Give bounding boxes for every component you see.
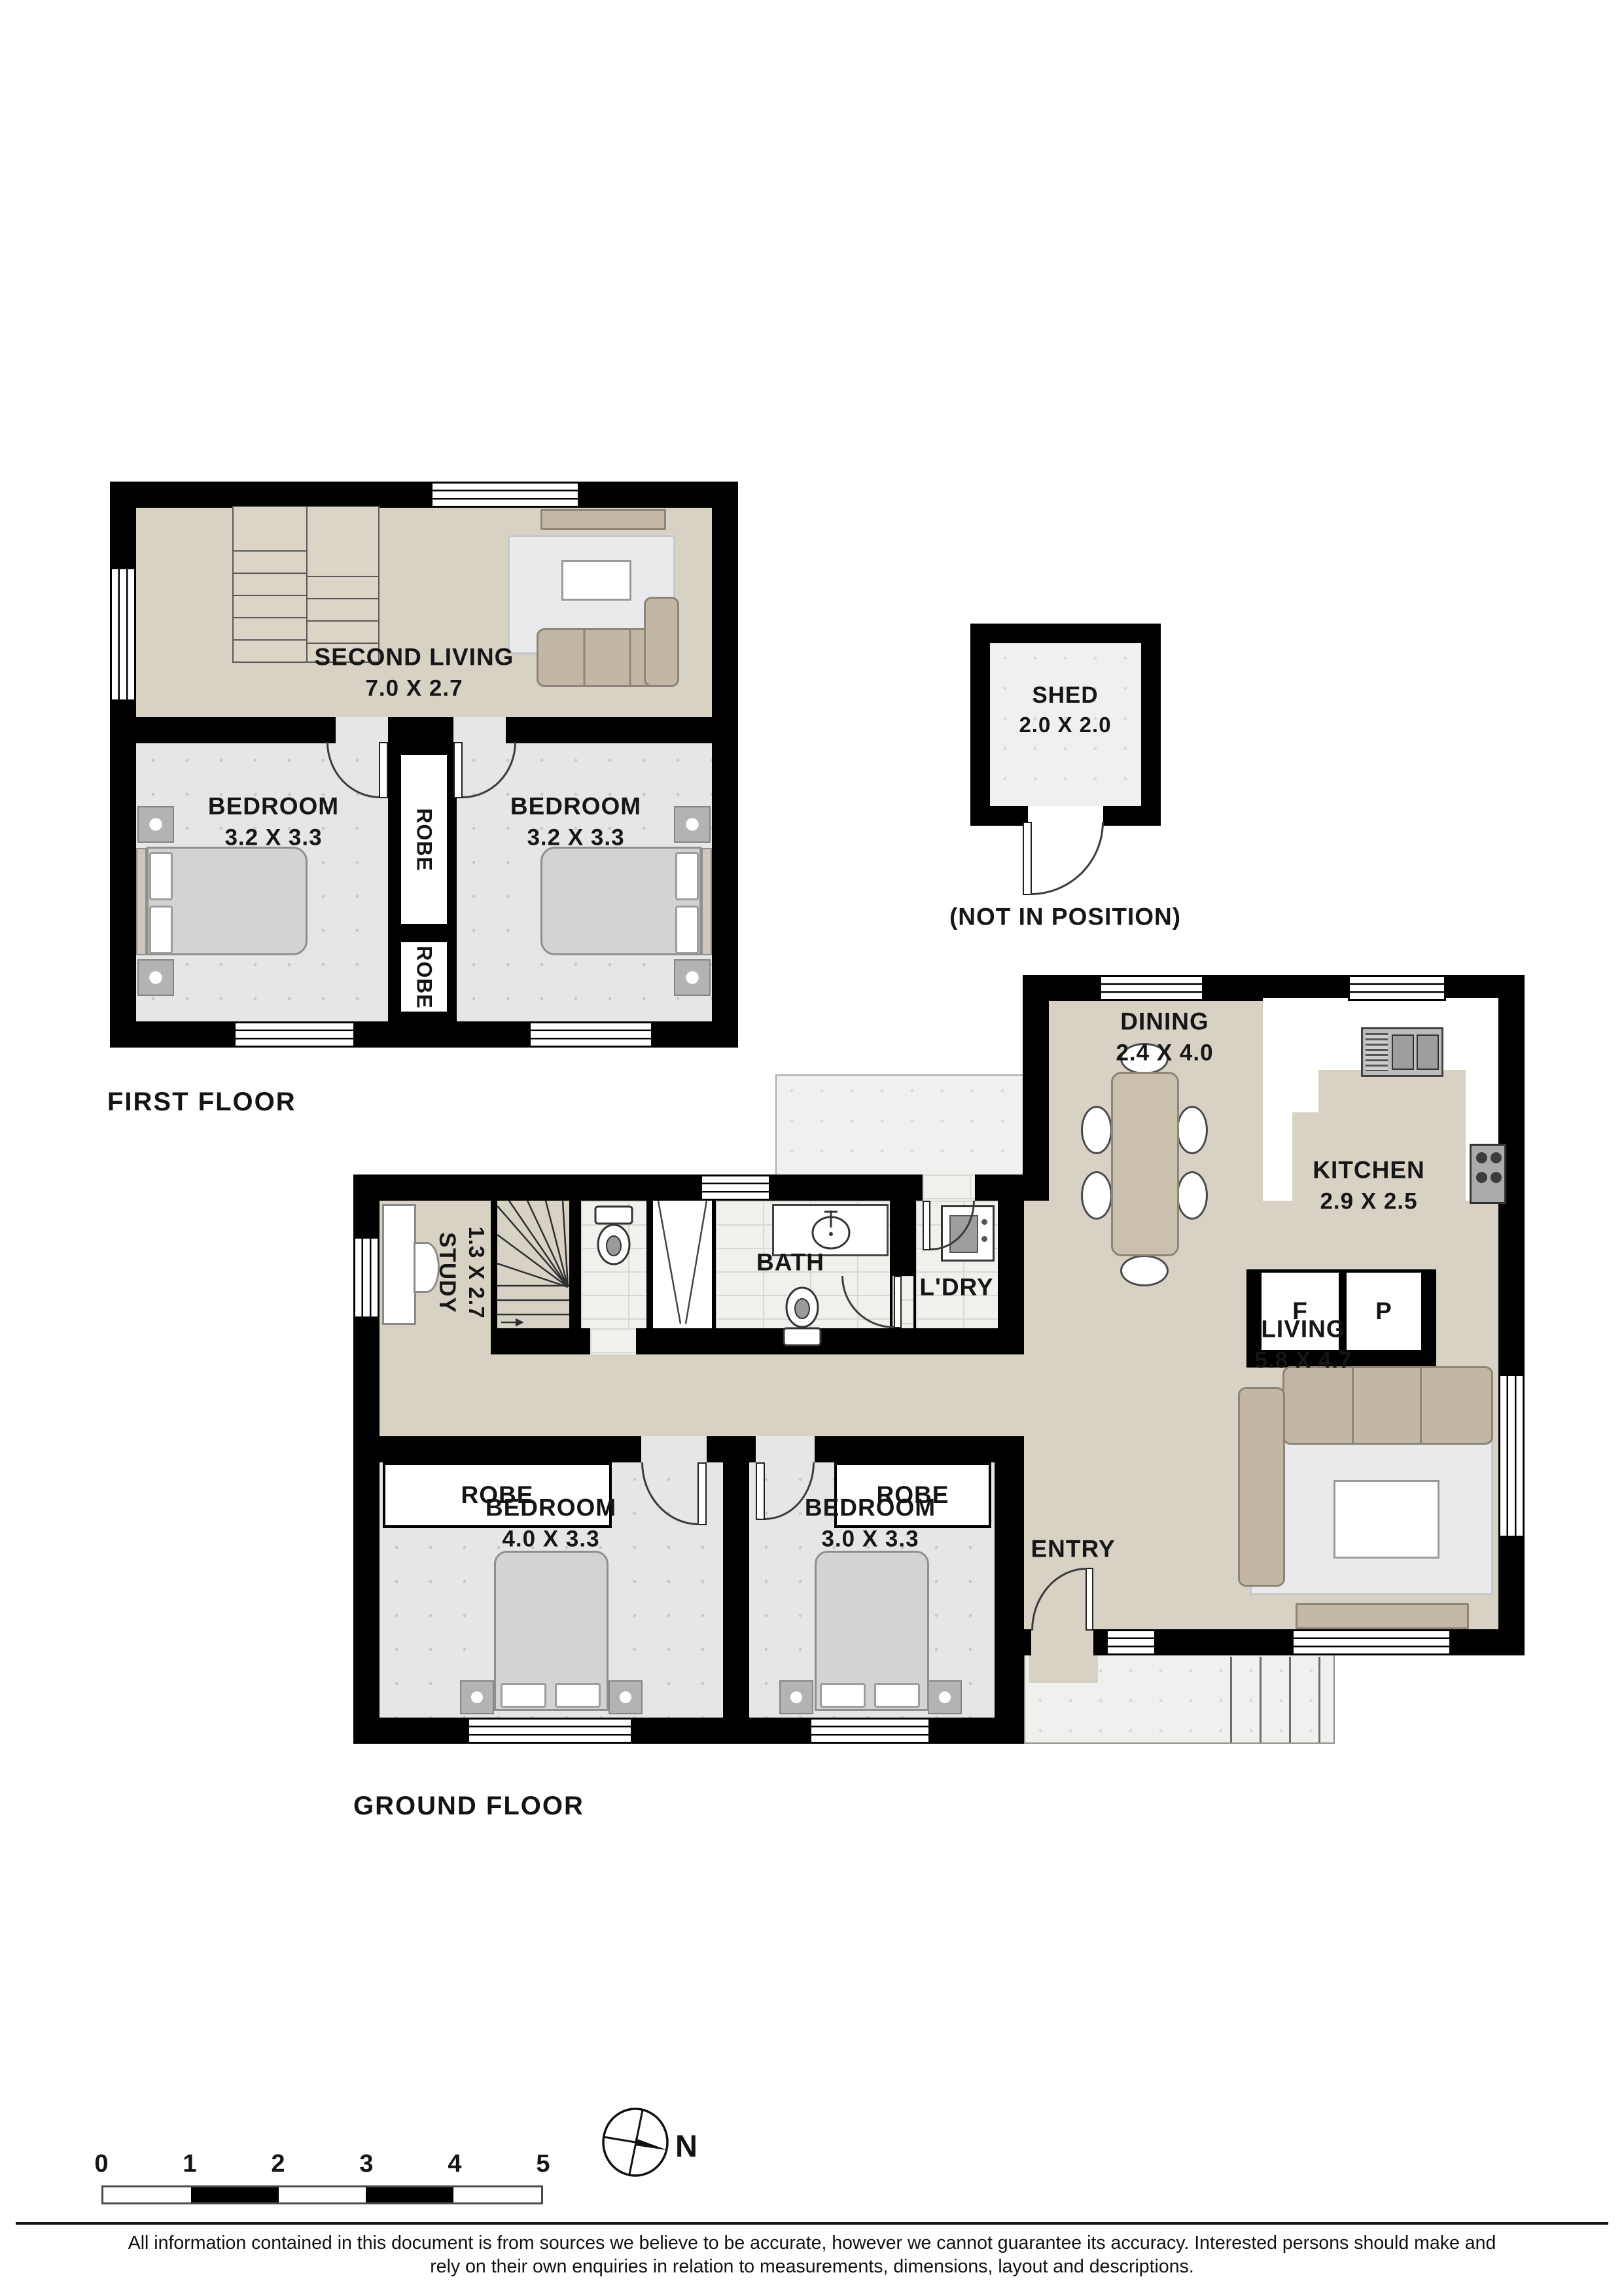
- porch-step: [1289, 1657, 1291, 1742]
- scale-tick: 5: [536, 2150, 550, 2178]
- ff-bedroom-left-label: BEDROOM 3.2 X 3.3: [208, 790, 339, 853]
- dining-chair: [1176, 1171, 1208, 1220]
- porch-step: [1260, 1657, 1262, 1742]
- door-arc: [1031, 822, 1104, 895]
- dining-chair: [1120, 1255, 1169, 1286]
- bedside-table: [928, 1680, 962, 1714]
- ff-stairs: [232, 506, 380, 663]
- gf-stairs: [497, 1201, 569, 1328]
- scale-tick: 1: [183, 2150, 196, 2178]
- footer-divider: [16, 2222, 1608, 2225]
- door-leaf: [756, 1462, 765, 1520]
- window: [809, 1718, 930, 1744]
- ff-robe-upper: ROBE: [398, 752, 450, 927]
- entry-label: ENTRY: [1031, 1534, 1115, 1566]
- dining-chair: [1081, 1171, 1112, 1220]
- window: [467, 1718, 633, 1744]
- porch-step: [1318, 1657, 1320, 1742]
- window: [1498, 1374, 1525, 1538]
- ff-door-opening-right: [453, 717, 506, 743]
- dining-chair: [1176, 1106, 1208, 1154]
- pantry-cabinet: P: [1347, 1273, 1421, 1350]
- scale-tick: 2: [271, 2150, 285, 2178]
- window: [1106, 1629, 1156, 1655]
- scale-bar: 0 1 2 3 4 5: [101, 2150, 543, 2205]
- bedside-table: [779, 1680, 813, 1714]
- door-leaf: [923, 1201, 930, 1250]
- pillow: [149, 852, 173, 900]
- study-label: 1.3 X 2.7 STUDY: [432, 1226, 491, 1318]
- window: [1292, 1629, 1451, 1655]
- ff-robe-upper-label: ROBE: [412, 808, 436, 871]
- kitchen-sink-unit: [1361, 1027, 1443, 1077]
- dining-table: [1111, 1072, 1179, 1256]
- pantry-label: P: [1375, 1298, 1392, 1325]
- door-leaf: [379, 742, 388, 798]
- first-floor-title: FIRST FLOOR: [107, 1087, 296, 1117]
- laundry-door-opening: [923, 1174, 975, 1201]
- window: [1348, 975, 1446, 1001]
- ff-door-opening-left: [336, 717, 388, 743]
- ff-coffee-table: [561, 560, 631, 601]
- vanity-sink: [805, 1208, 857, 1252]
- living-label: LIVING 5.8 X 4.7: [1254, 1313, 1352, 1375]
- toilet: [590, 1204, 637, 1269]
- ff-bedroom-right-label: BEDROOM 3.2 X 3.3: [510, 790, 641, 853]
- door-leaf: [697, 1462, 707, 1525]
- study-desk: [382, 1204, 416, 1325]
- gf-bedroom-left-door-opening: [641, 1436, 707, 1462]
- living-sofa-chaise: [1238, 1387, 1285, 1587]
- bedside-table: [137, 806, 174, 843]
- pillow: [501, 1683, 546, 1708]
- scale-tick: 0: [94, 2150, 108, 2178]
- bedside-table: [460, 1680, 494, 1714]
- ff-sofa-chaise: [644, 597, 679, 687]
- tv-unit: [1296, 1603, 1469, 1629]
- stair-wall: [491, 1201, 497, 1328]
- living-sofa: [1282, 1366, 1493, 1445]
- scale-tick: 3: [359, 2150, 373, 2178]
- wc-door-opening: [590, 1328, 636, 1354]
- window: [110, 567, 136, 701]
- north-compass-icon: [601, 2107, 673, 2179]
- shed-label: SHED 2.0 X 2.0: [1019, 680, 1111, 739]
- scale-tick: 4: [448, 2150, 461, 2178]
- pillow: [675, 852, 699, 900]
- bedside-table: [674, 806, 711, 843]
- ground-floor-title: GROUND FLOOR: [353, 1792, 584, 1821]
- pillow: [555, 1683, 601, 1708]
- dining-label: DINING 2.4 X 4.0: [1116, 1006, 1213, 1068]
- pillow: [675, 906, 699, 954]
- entry-door-opening: [1031, 1629, 1093, 1655]
- gf-bedroom-right-label: BEDROOM 3.0 X 3.3: [805, 1492, 936, 1554]
- north-label: N: [675, 2128, 697, 2164]
- ground-floor-plan: ROBE ROBE F P: [353, 975, 1525, 1744]
- bath-label: BATH: [756, 1247, 824, 1279]
- laundry-label: L'DRY: [919, 1272, 993, 1304]
- toilet: [779, 1282, 826, 1348]
- bed-headboard: [701, 848, 712, 955]
- bedside-table: [137, 959, 174, 996]
- cooktop: [1470, 1144, 1506, 1204]
- window: [234, 1021, 355, 1048]
- patio: [775, 1074, 1024, 1178]
- window: [431, 482, 580, 508]
- disclaimer-line-1: All information contained in this docume…: [0, 2233, 1624, 2254]
- scale-bar-rule: [101, 2185, 543, 2204]
- gf-bedroom-right-door-opening: [756, 1436, 815, 1462]
- disclaimer-line-2: rely on their own enquiries in relation …: [0, 2256, 1624, 2278]
- living-coffee-table: [1333, 1480, 1439, 1559]
- dining-chair: [1081, 1106, 1112, 1154]
- shower: [653, 1201, 712, 1328]
- kitchen-label: KITCHEN 2.9 X 2.5: [1313, 1154, 1424, 1216]
- pillow: [149, 906, 173, 954]
- door-leaf: [453, 742, 463, 798]
- window: [353, 1237, 380, 1318]
- door-leaf: [894, 1276, 902, 1328]
- floorplan-page: ROBE ROBE: [0, 0, 1624, 2296]
- sideboard: [540, 509, 666, 530]
- first-floor-plan: ROBE ROBE: [110, 482, 738, 1048]
- shed-note: (NOT IN POSITION): [949, 902, 1181, 934]
- window: [1099, 975, 1204, 1001]
- porch-step: [1230, 1657, 1232, 1742]
- window: [700, 1174, 771, 1201]
- shed-plan: SHED 2.0 X 2.0: [970, 624, 1161, 905]
- bed-headboard: [136, 848, 147, 955]
- pillow: [820, 1683, 866, 1708]
- pillow: [874, 1683, 920, 1708]
- bedside-table: [609, 1680, 643, 1714]
- entry-landing: [1029, 1655, 1098, 1683]
- gf-bedroom-left-label: BEDROOM 4.0 X 3.3: [485, 1492, 616, 1554]
- second-living-label: SECOND LIVING 7.0 X 2.7: [315, 641, 514, 703]
